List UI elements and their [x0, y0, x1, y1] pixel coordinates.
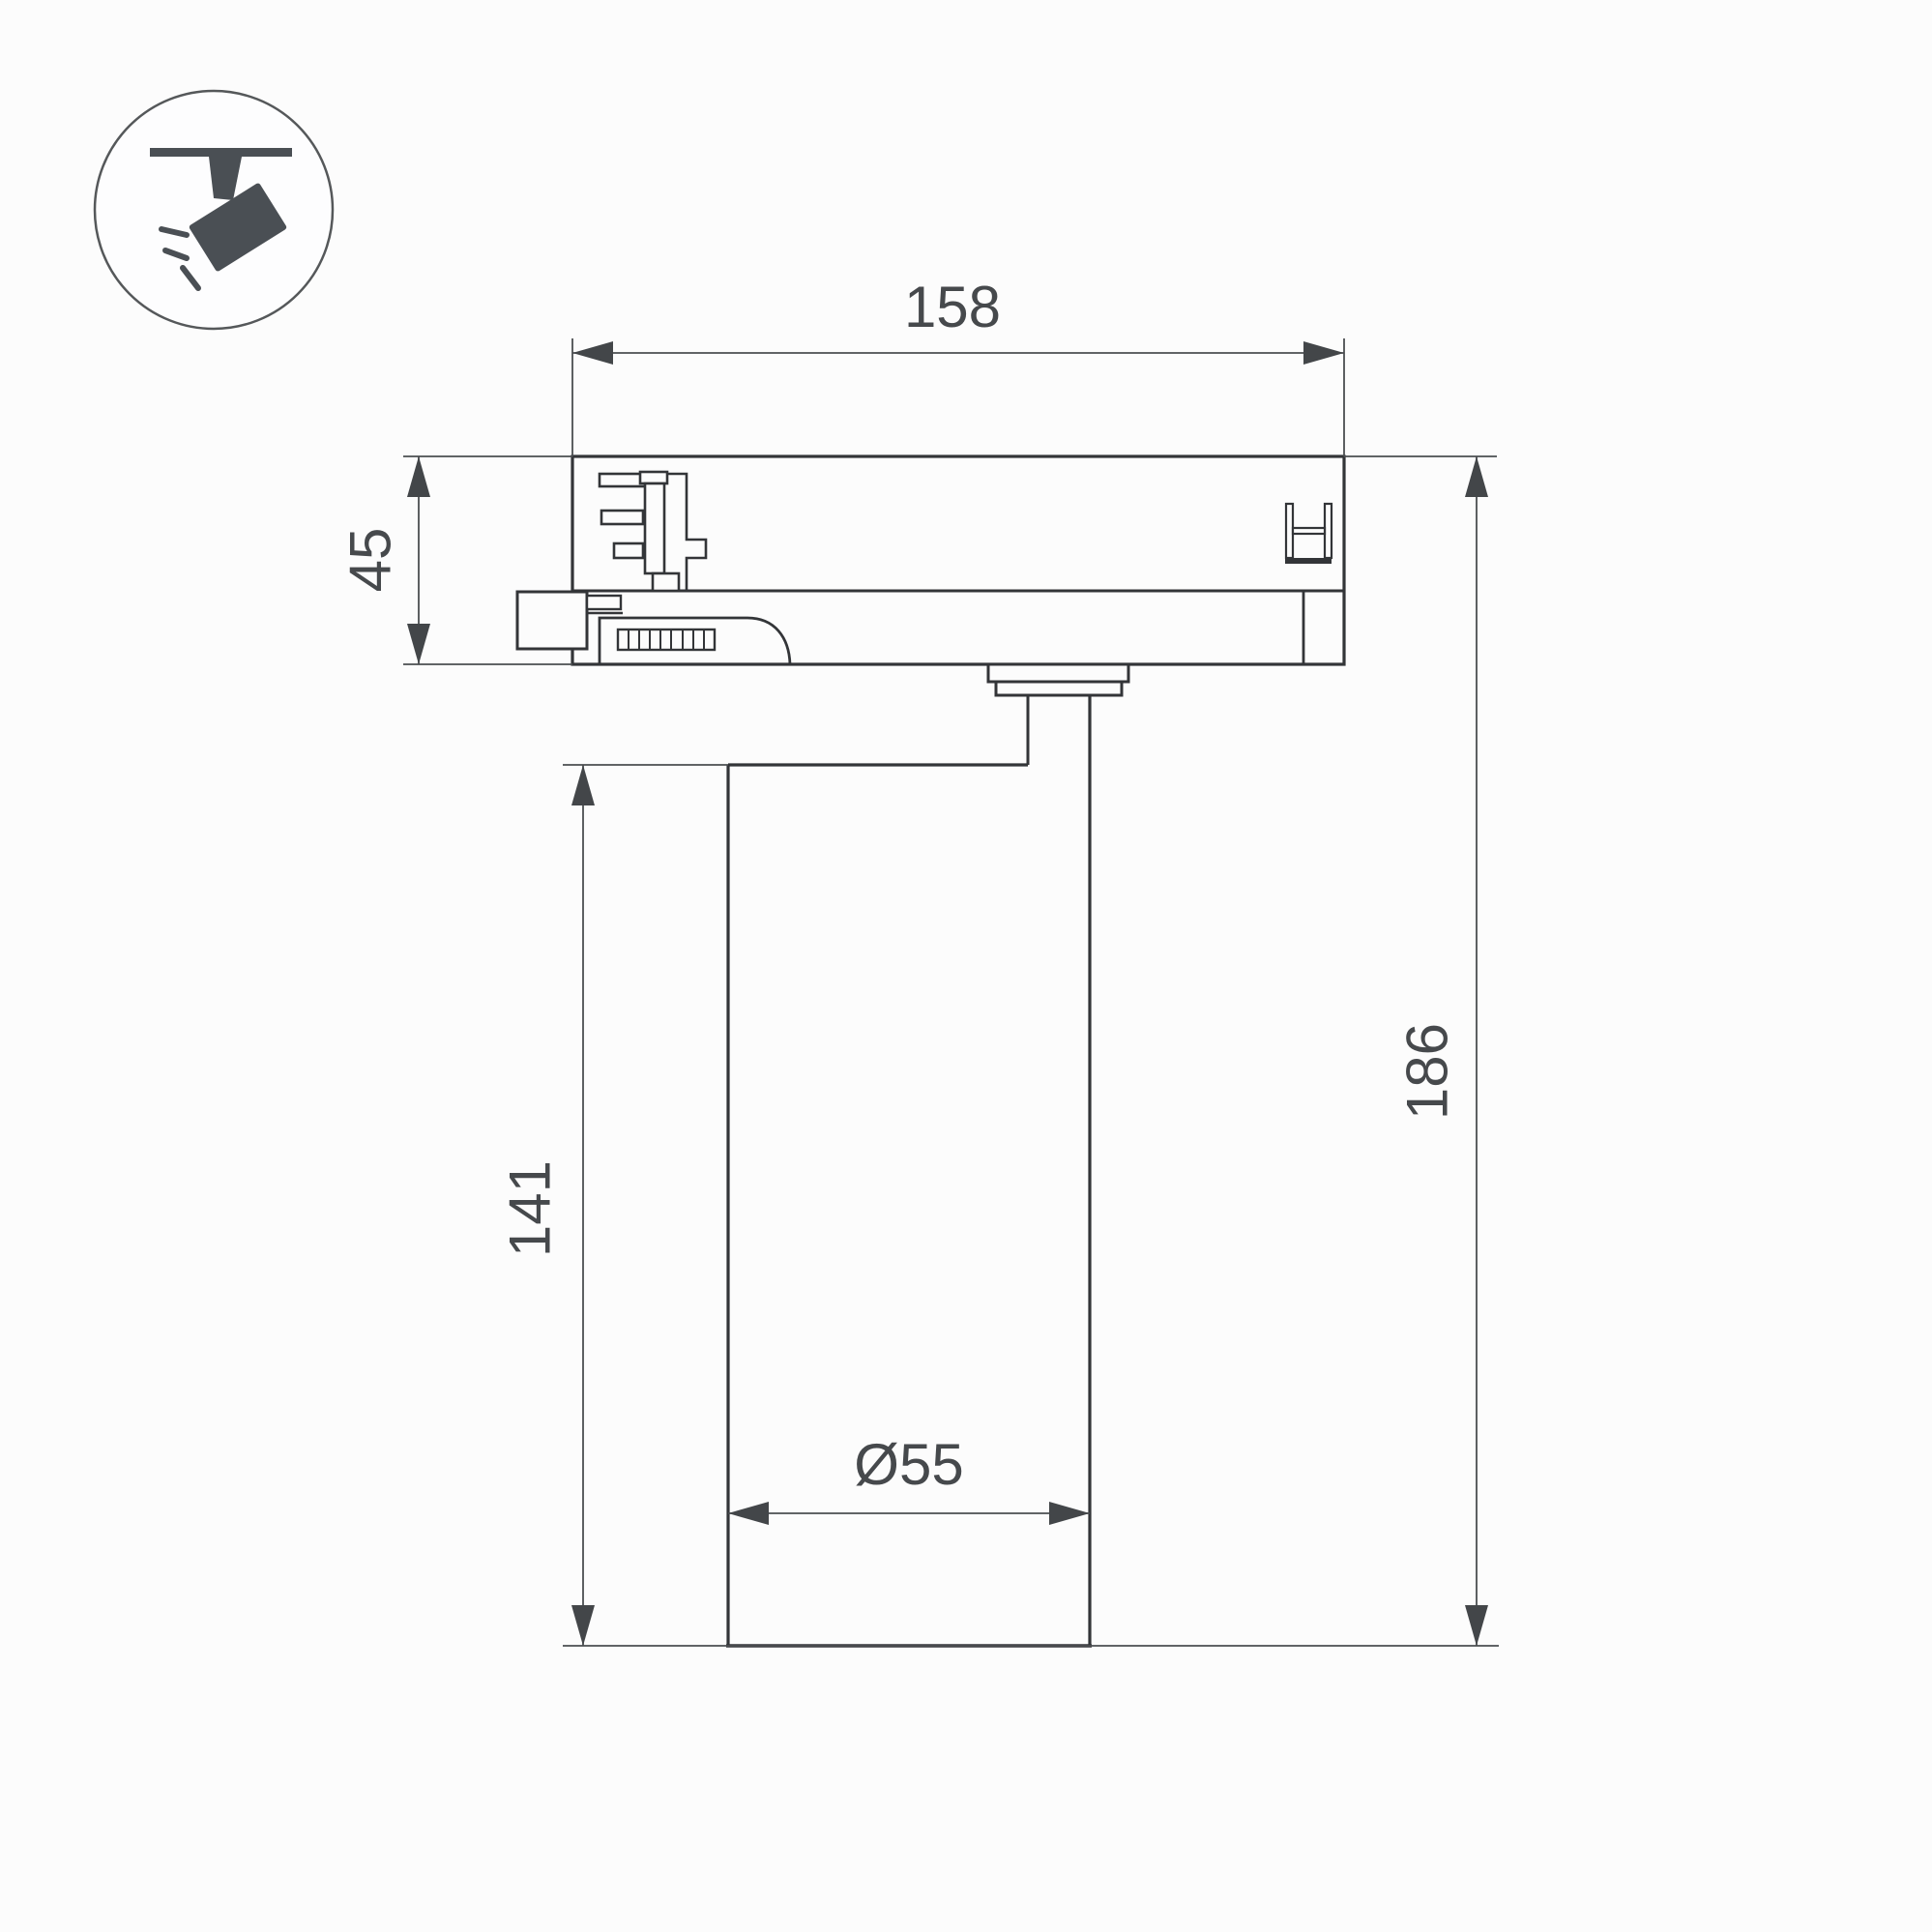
- dim186-arrow-bottom: [1465, 1605, 1488, 1646]
- dim45-arrow-bottom: [407, 624, 430, 664]
- dim186-label: 186: [1395, 1023, 1460, 1120]
- dim55-arrow-right: [1049, 1502, 1090, 1525]
- flange-step-upper: [988, 664, 1128, 682]
- contact-prong-lower: [614, 543, 643, 558]
- contact-foot: [653, 573, 679, 591]
- track-adapter-side-view: [517, 456, 1344, 664]
- dim141-label: 141: [498, 1160, 563, 1257]
- contact-post: [645, 483, 664, 573]
- contact-prong-middle: [601, 511, 643, 524]
- dim158-arrow-right: [1303, 341, 1344, 365]
- technical-drawing-page: 158 45 141 186 Ø55: [0, 0, 1932, 1932]
- dim45-label: 45: [338, 528, 403, 593]
- dim186-arrow-top: [1465, 456, 1488, 497]
- dim141-arrow-top: [571, 765, 595, 805]
- dim141-arrow-bottom: [571, 1605, 595, 1646]
- adapter-slider: [618, 629, 715, 650]
- dimension-158: 158: [572, 275, 1344, 456]
- dim55-arrow-left: [728, 1502, 769, 1525]
- dim45-arrow-top: [407, 456, 430, 497]
- track-spotlight-icon: [95, 91, 333, 329]
- clip-crossbar: [1293, 528, 1325, 534]
- clip-base: [1285, 558, 1332, 564]
- flange-step-lower: [996, 682, 1122, 695]
- dimension-diameter-55: Ø55: [728, 1432, 1090, 1525]
- icon-circle: [95, 91, 333, 329]
- dim158-label: 158: [904, 275, 1001, 339]
- dimension-141: 141: [498, 765, 729, 1646]
- track-light-dimension-drawing: 158 45 141 186 Ø55: [0, 0, 1932, 1932]
- dim158-arrow-left: [572, 341, 613, 365]
- adapter-latch-block: [517, 592, 587, 649]
- icon-track-rail: [150, 148, 292, 157]
- swivel-joint: [988, 664, 1128, 765]
- adapter-latch-tab: [587, 596, 621, 609]
- dim55-label: Ø55: [854, 1432, 963, 1497]
- contact-cap: [640, 472, 667, 483]
